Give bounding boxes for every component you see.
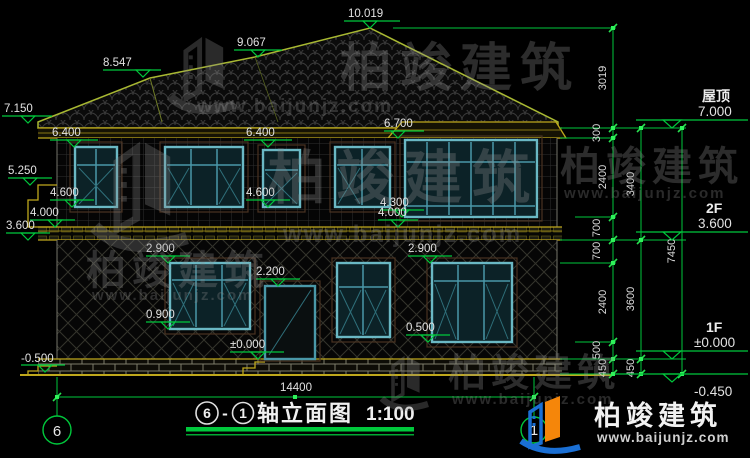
elev-step-top: 5.250 bbox=[8, 165, 37, 177]
axis-bubble-left-num: 6 bbox=[53, 423, 61, 440]
level-marker-roof: 屋顶 7.000 bbox=[636, 88, 748, 128]
watermark-site-lowleft: www.baijunjz.com bbox=[91, 287, 253, 304]
vdim-700-b: 700 bbox=[591, 242, 603, 260]
watermark-site-mid: www.baijunjz.com bbox=[282, 221, 522, 248]
elev-w1f-left-sill: 0.900 bbox=[146, 309, 175, 321]
title-underline-thick bbox=[186, 427, 414, 432]
elev-eave-left: 7.150 bbox=[4, 103, 33, 115]
level-marker-2f: 2F 3.600 bbox=[636, 200, 748, 240]
marker-step-top: 5.250 bbox=[8, 165, 52, 185]
cad-elevation-drawing: 10.019 9.067 8.547 7.150 6.400 6.400 6.7… bbox=[0, 0, 750, 458]
elev-ridge-left: 9.067 bbox=[237, 37, 266, 49]
watermark-company-mid: 柏竣建筑 bbox=[268, 144, 540, 212]
vdim-7450: 7450 bbox=[666, 239, 678, 263]
vdim-3600: 3600 bbox=[625, 287, 637, 311]
overall-width-dim: 14400 bbox=[280, 382, 312, 394]
window-1f-3 bbox=[427, 258, 517, 347]
level-roof-value: 7.000 bbox=[698, 104, 732, 119]
elev-w2f-mid-top: 6.400 bbox=[246, 127, 275, 139]
drawing-surface: 10.019 9.067 8.547 7.150 6.400 6.400 6.7… bbox=[0, 0, 750, 458]
level-1f-value: ±0.000 bbox=[694, 335, 735, 350]
vdim-3019: 3019 bbox=[597, 66, 609, 90]
level-roof-name: 屋顶 bbox=[702, 88, 730, 104]
axis-bubble-left: 6 bbox=[43, 416, 71, 444]
title-block: 6 - 1 轴立面图 1:100 bbox=[186, 401, 415, 436]
title-name: 轴立面图 bbox=[257, 401, 353, 426]
level-marker-1f: 1F ±0.000 bbox=[636, 319, 748, 359]
window-1f-2 bbox=[332, 258, 395, 342]
level-2f-name: 2F bbox=[706, 200, 723, 216]
marker-ridge-lower: 8.547 bbox=[103, 57, 161, 77]
level-2f-value: 3.600 bbox=[698, 216, 732, 231]
vdim-300: 300 bbox=[591, 124, 603, 142]
title-bubble-left: 6 bbox=[203, 405, 211, 421]
logo-tower-orange-icon bbox=[545, 396, 560, 442]
elev-band-left: 4.000 bbox=[30, 207, 59, 219]
brand-company-name: 柏竣建筑 bbox=[594, 400, 722, 431]
title-bubble-right: 1 bbox=[239, 405, 247, 421]
watermark-company-bottom: 柏竣建筑 bbox=[448, 351, 620, 395]
elev-w2f-left-sill: 4.600 bbox=[50, 187, 79, 199]
elev-floor2-left: 3.600 bbox=[6, 220, 35, 232]
elev-w1f-right-sill: 0.500 bbox=[406, 322, 435, 334]
elev-grade-left: -0.500 bbox=[21, 353, 54, 365]
title-underline-thin bbox=[186, 434, 414, 436]
watermark-site-right: www.baijunjz.com bbox=[563, 185, 725, 202]
brand-website: www.baijunjz.com bbox=[596, 430, 730, 445]
vdim-700-a: 700 bbox=[591, 219, 603, 237]
marker-peak: 10.019 bbox=[344, 8, 400, 28]
elev-w2f-left-top: 6.400 bbox=[52, 127, 81, 139]
elev-peak: 10.019 bbox=[348, 8, 383, 20]
vdim-2400-lower: 2400 bbox=[597, 290, 609, 314]
elev-ground-floor: ±0.000 bbox=[230, 339, 265, 351]
level-1f-name: 1F bbox=[706, 319, 723, 335]
watermark-company-right: 柏竣建筑 bbox=[560, 144, 744, 190]
axis-bubble-right: 1 bbox=[521, 417, 547, 443]
level-grade-value: -0.450 bbox=[694, 384, 732, 399]
elev-ridge-lower: 8.547 bbox=[103, 57, 132, 69]
brand-logo-colored: 柏竣建筑 www.baijunjz.com bbox=[521, 396, 730, 451]
watermark-company-top: 柏竣建筑 bbox=[340, 39, 580, 99]
watermark-site-top: www.baijunjz.com bbox=[196, 96, 393, 117]
watermark-site-bottom: www.baijunjz.com bbox=[451, 391, 613, 408]
title-dash: - bbox=[222, 404, 228, 423]
window-2f-2 bbox=[160, 142, 248, 212]
elev-bay-top: 6.700 bbox=[384, 118, 413, 130]
